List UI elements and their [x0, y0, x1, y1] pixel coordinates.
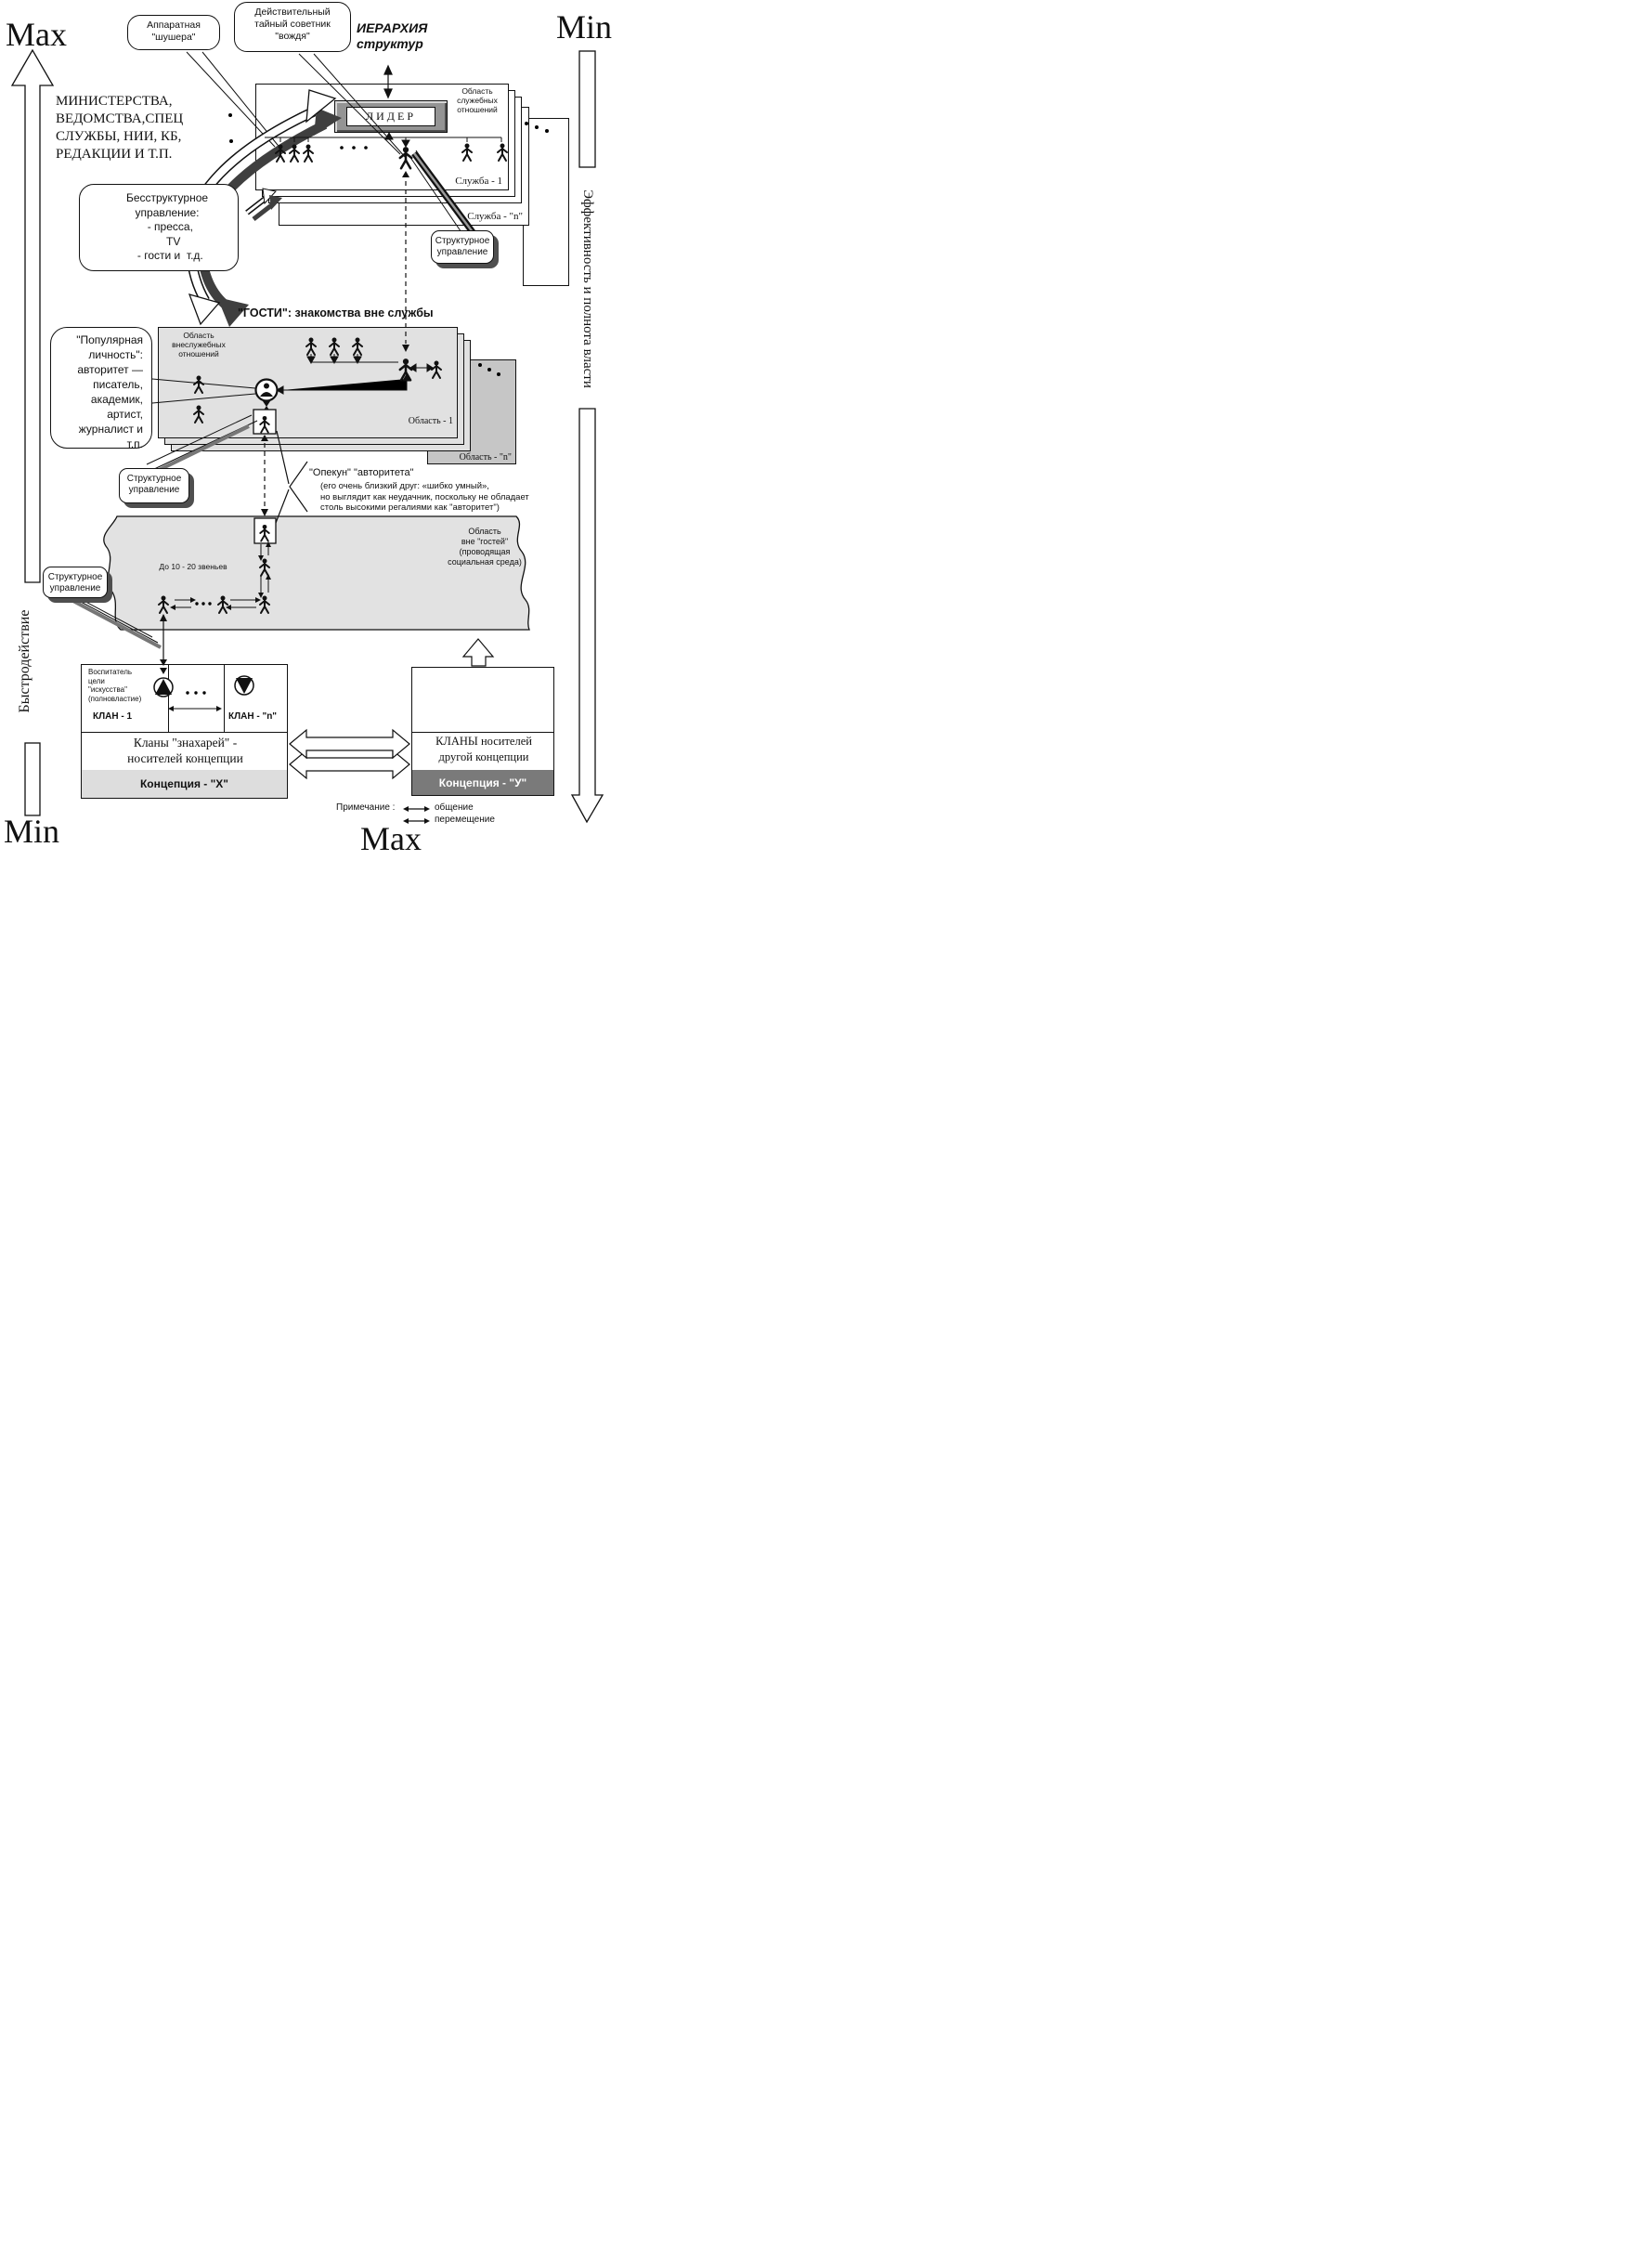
popular-person-callout: "Популярная личность": авторитет — писат… [50, 327, 152, 449]
guardian-boxed-person [253, 410, 276, 516]
structural-control-callout-top: Структурное управление [431, 230, 494, 264]
nonstructural-control-callout: Бесструктурное управление: - пресса, TV … [79, 184, 239, 271]
guests-heading: "ГОСТИ": знакомства вне службы [238, 306, 461, 319]
structural-ribbon-top [409, 150, 478, 243]
apparat-callout: Аппаратная "шушера" [127, 15, 220, 50]
structural-dashed-line [402, 171, 409, 352]
clan-exchange-arrows [290, 639, 493, 778]
guardian-note: (его очень близкий друг: «шибко умный», … [320, 481, 529, 514]
clan-symbols [154, 676, 253, 711]
page: { "axes": { "left": {"top": "Max", "labe… [0, 0, 1637, 2268]
structural-control-callout-mid: Структурное управление [119, 468, 189, 503]
band-label: Область вне "гостей" (проводящая социаль… [435, 527, 535, 567]
leader-updown-arrow [384, 66, 392, 98]
unstructured-small-arrows [247, 189, 282, 219]
structural-control-callout-low: Структурное управление [43, 567, 108, 598]
guest-people [194, 338, 500, 424]
legend-arrows [403, 806, 430, 824]
service-people [228, 113, 549, 168]
right-axis-arrow [572, 409, 603, 822]
guest-connectors [277, 354, 433, 394]
hierarchy-of-structures-diagram: Max Min Min Max Быстродействие Эффективн… [0, 0, 631, 868]
left-axis-arrow [12, 50, 53, 582]
right-axis-shaft-top [579, 51, 595, 167]
chain-links-label: До 10 - 20 звеньев [150, 562, 236, 571]
left-axis-shaft-bottom [25, 743, 40, 815]
guardian-bracket [276, 431, 307, 523]
advisor-callout: Действительный тайный советник "вождя" [234, 2, 351, 52]
authority-circle-icon [152, 379, 278, 411]
guardian-title: "Опекун" "авторитета" [309, 467, 414, 478]
